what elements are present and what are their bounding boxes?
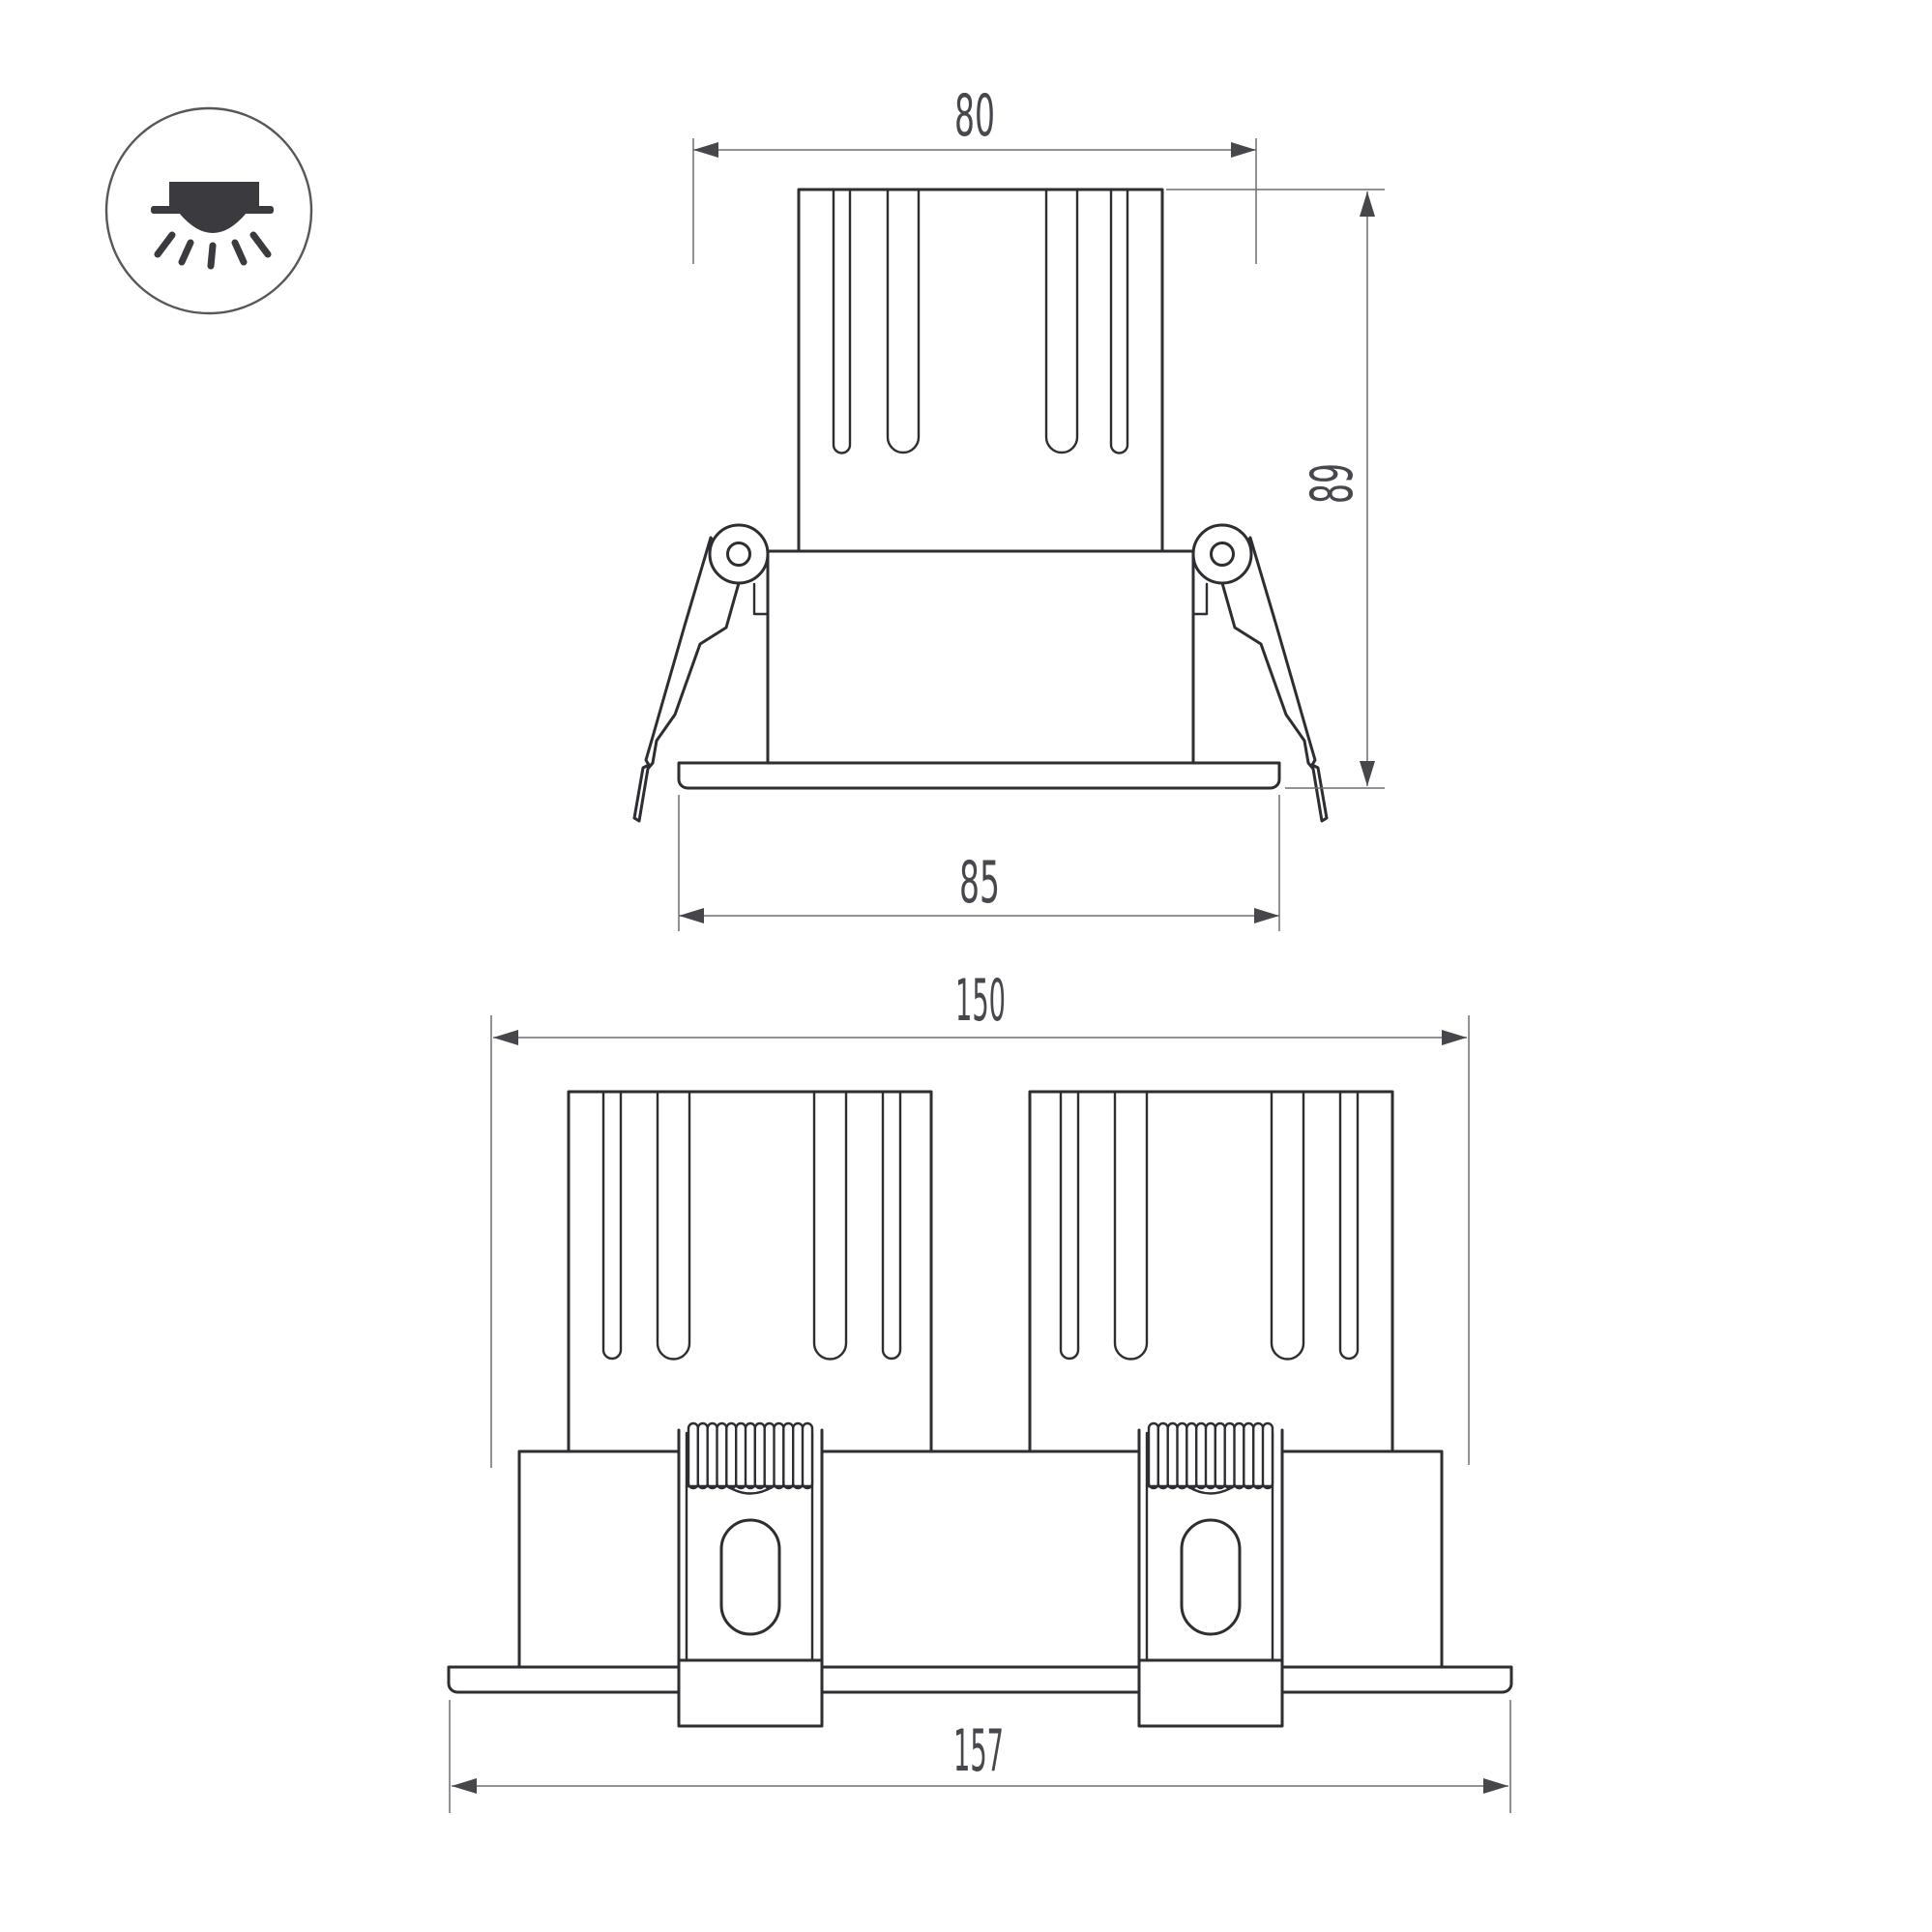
clip-bracket-right (1193, 584, 1207, 614)
heatsink (799, 190, 1162, 551)
bracket-foot (679, 1660, 822, 1726)
arrow-right-icon (1483, 1778, 1508, 1794)
double-module-front-view: 150 157 (449, 967, 1511, 1813)
single-module-front-view: 80 89 85 (634, 82, 1385, 931)
coil-spring (687, 1423, 812, 1494)
dim-label-top-width: 80 (954, 82, 995, 150)
dimension-height: 89 (1166, 190, 1385, 788)
dim-label-flange-width: 157 (953, 1717, 1004, 1785)
downlight-body-icon (169, 182, 259, 207)
dim-label-height: 89 (1299, 463, 1366, 504)
lamp-housing (519, 1451, 1442, 1667)
arrow-up-icon (1360, 191, 1375, 217)
downlight-icon-badge (106, 108, 311, 313)
lamp-housing (768, 551, 1193, 763)
heatsink-body (1030, 1092, 1392, 1451)
heatsink-body (569, 1092, 931, 1451)
trim-flange (449, 1667, 1511, 1692)
technical-drawing: 80 89 85 (0, 0, 1932, 1932)
dimension-flange-width: 157 (450, 1700, 1510, 1813)
clip-pivot-hole (1212, 543, 1234, 566)
dimension-flange-width: 85 (679, 795, 1279, 931)
arrow-right-icon (1231, 142, 1256, 158)
coil-spring (1147, 1423, 1273, 1494)
downlight-flange-icon (151, 206, 274, 214)
heatsink-body (799, 190, 1162, 551)
arrow-down-icon (1360, 761, 1375, 786)
bracket-foot (1139, 1660, 1282, 1726)
drawing-page: 80 89 85 (0, 0, 1932, 1932)
connector-bracket-left (679, 1423, 822, 1726)
arrow-right-icon (1254, 908, 1279, 923)
dim-label-body-width: 150 (955, 967, 1006, 1035)
arrow-left-icon (452, 1778, 477, 1794)
dim-label-flange-width: 85 (959, 849, 1000, 917)
clip-bracket-left (754, 584, 768, 614)
arrow-left-icon (493, 1030, 518, 1045)
heatsink-right (1030, 1092, 1392, 1451)
heatsink-left (569, 1092, 931, 1451)
arrow-left-icon (679, 908, 704, 923)
connector-bracket-right (1139, 1423, 1282, 1726)
clip-pivot-hole (728, 543, 750, 566)
trim-flange (679, 763, 1279, 788)
arrow-left-icon (693, 142, 718, 158)
arrow-right-icon (1442, 1030, 1467, 1045)
